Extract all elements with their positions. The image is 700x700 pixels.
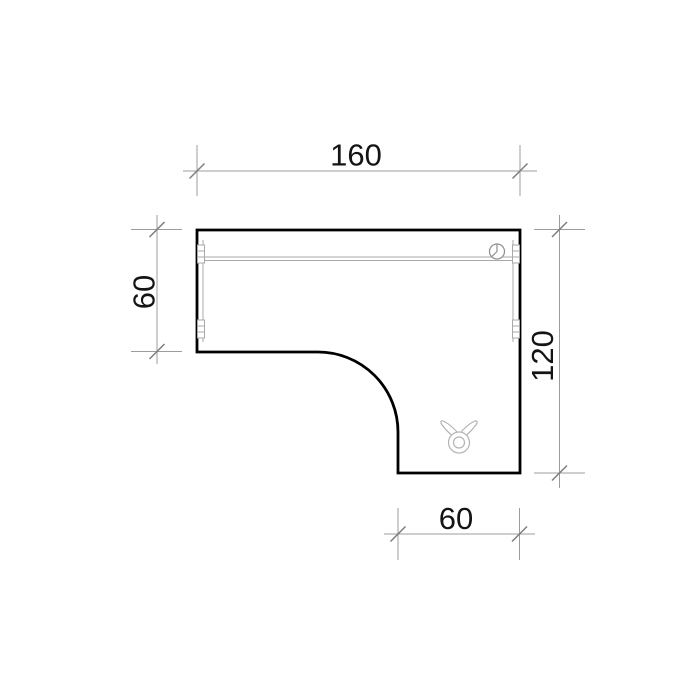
desk-technical-drawing: 160 60 120 60: [0, 0, 700, 700]
bracket-segment: [513, 251, 520, 257]
dimension-bottom: 60: [384, 501, 535, 560]
bracket-segment: [198, 326, 205, 332]
bracket-segment: [198, 251, 205, 257]
dimension-label-bottom: 60: [439, 501, 473, 536]
bracket-segment: [513, 332, 520, 338]
connector-bracket-right-bottom: [513, 320, 520, 338]
bracket-segment: [198, 257, 205, 263]
dimension-label-right: 120: [525, 330, 560, 382]
bracket-segment: [198, 245, 205, 251]
dimension-label-top: 160: [330, 138, 382, 173]
dimension-label-left: 60: [127, 275, 162, 309]
dimension-top: 160: [183, 138, 537, 197]
bracket-segment: [198, 320, 205, 326]
connector-bracket-left-bottom: [198, 320, 205, 338]
desk-outline: [197, 230, 520, 473]
cable-grommet-icon: [490, 244, 505, 259]
bracket-segment: [513, 320, 520, 326]
dimension-right: 120: [525, 215, 585, 488]
clip-ring-inner: [454, 437, 465, 448]
drawing-canvas: 160 60 120 60: [0, 0, 700, 700]
connector-bracket-right-top: [513, 245, 520, 263]
dimension-left: 60: [127, 215, 183, 364]
bracket-segment: [513, 257, 520, 263]
bracket-segment: [513, 326, 520, 332]
connector-bracket-left-top: [198, 245, 205, 263]
bracket-segment: [198, 332, 205, 338]
bracket-segment: [513, 245, 520, 251]
